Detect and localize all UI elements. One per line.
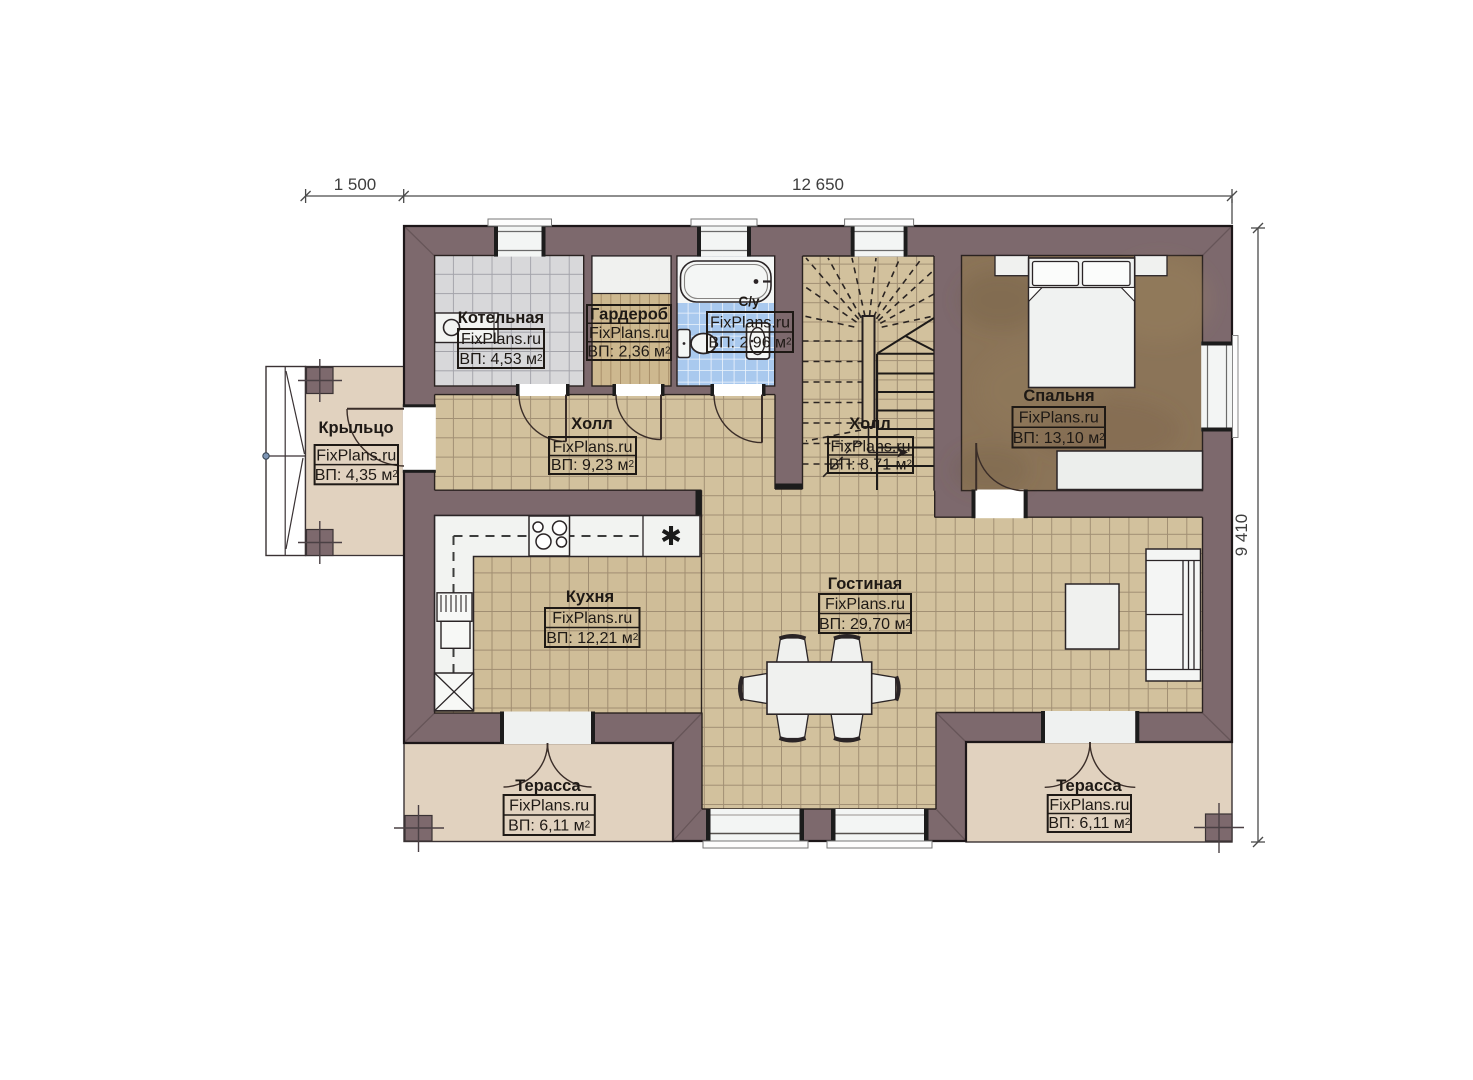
svg-text:ВП: 2,36 м2: ВП: 2,36 м2 [587, 343, 671, 360]
svg-text:Терасса: Терасса [1056, 777, 1122, 795]
svg-text:FixPlans.ru: FixPlans.ru [509, 798, 589, 815]
svg-text:Холл: Холл [849, 415, 890, 433]
svg-text:ВП: 6,11 м2: ВП: 6,11 м2 [1048, 815, 1130, 832]
svg-text:FixPlans.ru: FixPlans.ru [1019, 410, 1099, 427]
svg-text:Гостиная: Гостиная [828, 575, 903, 593]
svg-text:Гардероб: Гардероб [590, 306, 668, 324]
svg-text:Крыльцо: Крыльцо [318, 419, 393, 437]
svg-text:Холл: Холл [571, 415, 612, 433]
svg-text:ВП: 9,23 м2: ВП: 9,23 м2 [551, 457, 635, 474]
svg-text:FixPlans.ru: FixPlans.ru [589, 325, 669, 342]
svg-text:✱: ✱ [660, 521, 682, 551]
svg-text:Котельная: Котельная [458, 309, 544, 327]
svg-text:ВП: 12,21 м2: ВП: 12,21 м2 [546, 630, 639, 647]
svg-text:ВП: 8,71 м2: ВП: 8,71 м2 [829, 457, 913, 474]
svg-text:С/у: С/у [738, 294, 760, 309]
svg-text:ВП: 4,35 м2: ВП: 4,35 м2 [315, 467, 399, 484]
svg-text:ВП: 29,70 м2: ВП: 29,70 м2 [819, 616, 912, 633]
svg-text:1 500: 1 500 [334, 175, 377, 194]
svg-text:Спальня: Спальня [1023, 387, 1094, 405]
svg-text:FixPlans.ru: FixPlans.ru [461, 331, 541, 348]
svg-text:FixPlans.ru: FixPlans.ru [710, 315, 790, 332]
svg-text:ВП: 6,11 м2: ВП: 6,11 м2 [508, 818, 590, 835]
svg-text:FixPlans.ru: FixPlans.ru [830, 439, 910, 456]
svg-text:ВП: 4,53 м2: ВП: 4,53 м2 [459, 351, 543, 368]
svg-text:12 650: 12 650 [792, 175, 844, 194]
svg-text:FixPlans.ru: FixPlans.ru [316, 447, 396, 464]
svg-text:FixPlans.ru: FixPlans.ru [1049, 797, 1129, 814]
svg-text:FixPlans.ru: FixPlans.ru [552, 610, 632, 627]
svg-text:Терасса: Терасса [515, 777, 581, 795]
svg-text:ВП: 13,10 м2: ВП: 13,10 м2 [1013, 430, 1106, 447]
svg-text:FixPlans.ru: FixPlans.ru [552, 439, 632, 456]
svg-text:FixPlans.ru: FixPlans.ru [825, 596, 905, 613]
svg-text:Кухня: Кухня [566, 588, 614, 606]
svg-text:9 410: 9 410 [1232, 514, 1251, 557]
svg-text:ВП: 2,96 м2: ВП: 2,96 м2 [708, 335, 792, 352]
